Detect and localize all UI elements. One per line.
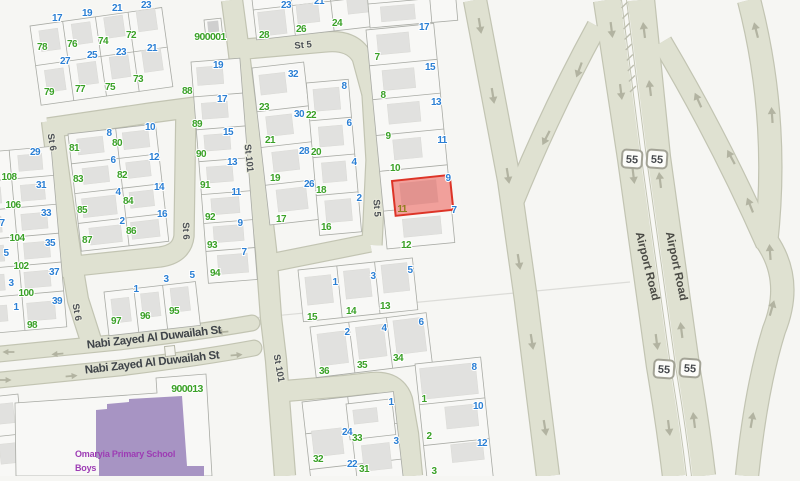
svg-text:81: 81 — [69, 143, 80, 154]
svg-text:23: 23 — [281, 0, 292, 11]
svg-text:11: 11 — [231, 187, 241, 198]
svg-text:23: 23 — [259, 102, 270, 113]
svg-text:14: 14 — [154, 182, 165, 193]
svg-text:96: 96 — [140, 311, 151, 322]
svg-text:89: 89 — [192, 119, 203, 130]
svg-text:90: 90 — [196, 149, 207, 160]
svg-text:55: 55 — [650, 154, 663, 167]
svg-text:13: 13 — [380, 301, 391, 312]
svg-text:108: 108 — [2, 172, 18, 183]
svg-text:900001: 900001 — [194, 31, 226, 43]
svg-text:74: 74 — [98, 36, 109, 47]
svg-text:15: 15 — [425, 62, 436, 73]
svg-text:55: 55 — [657, 364, 670, 377]
svg-text:77: 77 — [75, 84, 86, 95]
svg-text:92: 92 — [205, 212, 216, 223]
svg-text:11: 11 — [437, 135, 447, 146]
svg-text:106: 106 — [6, 200, 22, 211]
svg-text:33: 33 — [41, 208, 52, 219]
svg-text:91: 91 — [200, 180, 211, 191]
svg-text:13: 13 — [227, 157, 238, 168]
svg-text:85: 85 — [77, 205, 88, 216]
svg-text:33: 33 — [352, 433, 363, 444]
svg-text:39: 39 — [52, 296, 63, 307]
svg-text:Omaryia Primary School: Omaryia Primary School — [75, 449, 175, 459]
svg-text:St 5: St 5 — [294, 39, 313, 52]
svg-text:31: 31 — [359, 464, 370, 475]
svg-text:84: 84 — [123, 196, 134, 207]
svg-text:19: 19 — [270, 173, 281, 184]
svg-text:35: 35 — [357, 360, 368, 371]
svg-text:14: 14 — [346, 306, 357, 317]
svg-text:76: 76 — [67, 39, 78, 50]
svg-text:28: 28 — [299, 146, 310, 157]
svg-text:23: 23 — [116, 47, 127, 58]
svg-text:21: 21 — [112, 3, 123, 14]
svg-text:93: 93 — [207, 240, 218, 251]
svg-text:32: 32 — [288, 69, 299, 80]
svg-text:34: 34 — [393, 353, 404, 364]
svg-text:15: 15 — [223, 127, 234, 138]
svg-text:88: 88 — [182, 86, 193, 97]
svg-text:18: 18 — [316, 185, 327, 196]
svg-text:16: 16 — [321, 222, 332, 233]
svg-text:St 6: St 6 — [180, 222, 192, 240]
svg-text:12: 12 — [149, 152, 160, 163]
svg-text:10: 10 — [390, 163, 401, 174]
svg-text:17: 17 — [217, 94, 228, 105]
svg-text:24: 24 — [342, 427, 353, 438]
svg-text:27: 27 — [60, 56, 71, 67]
svg-text:23: 23 — [141, 0, 152, 11]
svg-text:29: 29 — [30, 147, 41, 158]
svg-text:900013: 900013 — [171, 383, 203, 395]
svg-text:22: 22 — [347, 459, 358, 470]
svg-text:95: 95 — [169, 306, 180, 317]
svg-text:12: 12 — [477, 438, 488, 449]
svg-text:31: 31 — [36, 180, 47, 191]
svg-text:21: 21 — [147, 43, 158, 54]
svg-text:24: 24 — [332, 18, 343, 29]
svg-text:17: 17 — [52, 13, 63, 24]
svg-text:55: 55 — [625, 154, 638, 167]
svg-text:94: 94 — [210, 268, 221, 279]
svg-text:22: 22 — [306, 110, 317, 121]
svg-text:10: 10 — [145, 122, 156, 133]
svg-text:98: 98 — [27, 320, 38, 331]
svg-text:11: 11 — [397, 204, 407, 215]
svg-text:97: 97 — [111, 316, 122, 327]
svg-text:26: 26 — [296, 24, 307, 35]
svg-text:19: 19 — [213, 60, 224, 71]
svg-text:10: 10 — [473, 401, 484, 412]
svg-text:12: 12 — [401, 240, 412, 251]
svg-text:36: 36 — [319, 366, 330, 377]
svg-text:100: 100 — [19, 288, 35, 299]
svg-text:86: 86 — [126, 226, 137, 237]
svg-text:75: 75 — [105, 82, 116, 93]
svg-text:17: 17 — [419, 22, 430, 33]
svg-text:16: 16 — [157, 209, 168, 220]
svg-text:17: 17 — [276, 214, 287, 225]
svg-text:Boys: Boys — [75, 463, 96, 473]
svg-text:55: 55 — [683, 363, 696, 376]
svg-text:21: 21 — [265, 135, 276, 146]
svg-text:83: 83 — [73, 174, 84, 185]
svg-text:82: 82 — [117, 170, 128, 181]
svg-text:26: 26 — [304, 179, 315, 190]
svg-text:15: 15 — [307, 312, 318, 323]
svg-text:79: 79 — [44, 87, 55, 98]
svg-text:32: 32 — [313, 454, 324, 465]
svg-text:20: 20 — [311, 147, 322, 158]
svg-text:13: 13 — [431, 97, 442, 108]
svg-text:30: 30 — [294, 109, 305, 120]
svg-text:72: 72 — [126, 30, 137, 41]
svg-text:73: 73 — [133, 74, 144, 85]
svg-text:80: 80 — [112, 138, 123, 149]
svg-text:102: 102 — [14, 261, 30, 272]
svg-text:St 5: St 5 — [370, 199, 382, 218]
svg-text:104: 104 — [10, 233, 26, 244]
svg-text:28: 28 — [259, 30, 270, 41]
svg-text:21: 21 — [314, 0, 325, 7]
svg-text:37: 37 — [49, 267, 60, 278]
svg-text:25: 25 — [87, 50, 98, 61]
svg-text:35: 35 — [45, 238, 56, 249]
svg-text:87: 87 — [82, 235, 93, 246]
svg-text:78: 78 — [37, 42, 48, 53]
svg-text:19: 19 — [82, 8, 93, 19]
